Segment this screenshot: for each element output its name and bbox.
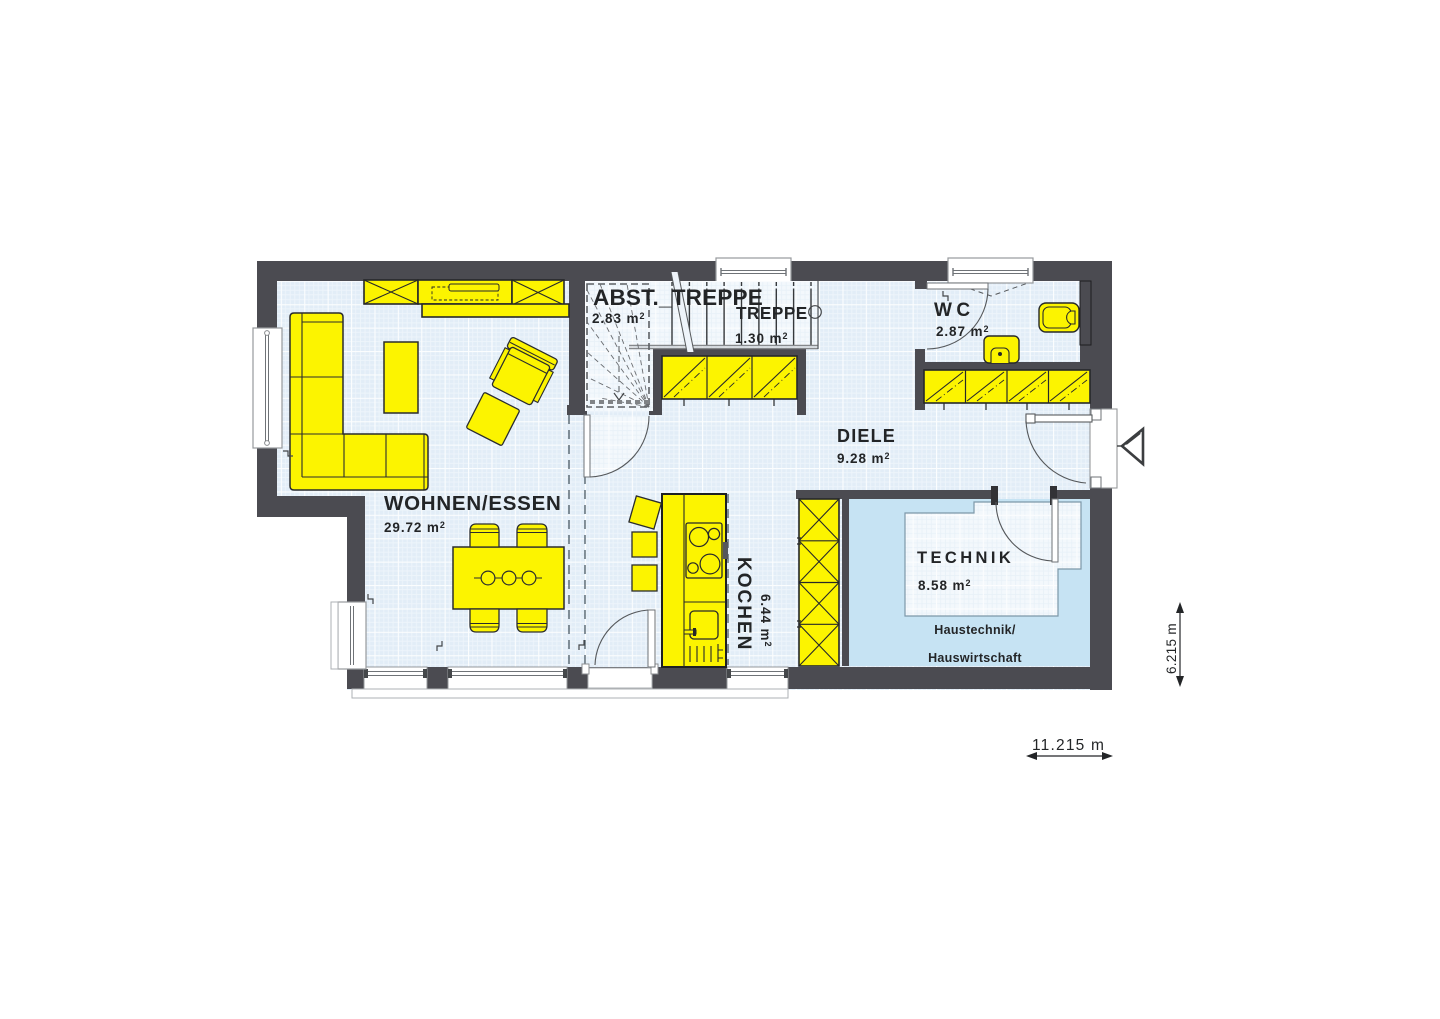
svg-text:8.58 m2: 8.58 m2 [918,578,971,593]
svg-text:6.44 m2: 6.44 m2 [758,594,773,647]
svg-text:WOHNEN/ESSEN: WOHNEN/ESSEN [384,492,562,515]
svg-text:9.28 m2: 9.28 m2 [837,451,890,466]
svg-text:Haustechnik/: Haustechnik/ [934,623,1016,637]
svg-text:1.30 m2: 1.30 m2 [735,331,788,346]
svg-text:2.83 m2: 2.83 m2 [592,311,645,326]
svg-text:TREPPE: TREPPE [736,303,808,323]
svg-text:6.215 m: 6.215 m [1164,623,1179,674]
svg-text:Hauswirtschaft: Hauswirtschaft [928,651,1022,665]
svg-text:29.72 m2: 29.72 m2 [384,520,446,535]
svg-text:2.87 m2: 2.87 m2 [936,324,989,339]
svg-text:TECHNIK: TECHNIK [917,549,1014,567]
svg-text:KOCHEN: KOCHEN [733,557,754,651]
svg-text:WC: WC [934,300,975,321]
svg-text:DIELE: DIELE [837,426,896,446]
svg-text:11.215 m: 11.215 m [1032,737,1105,754]
